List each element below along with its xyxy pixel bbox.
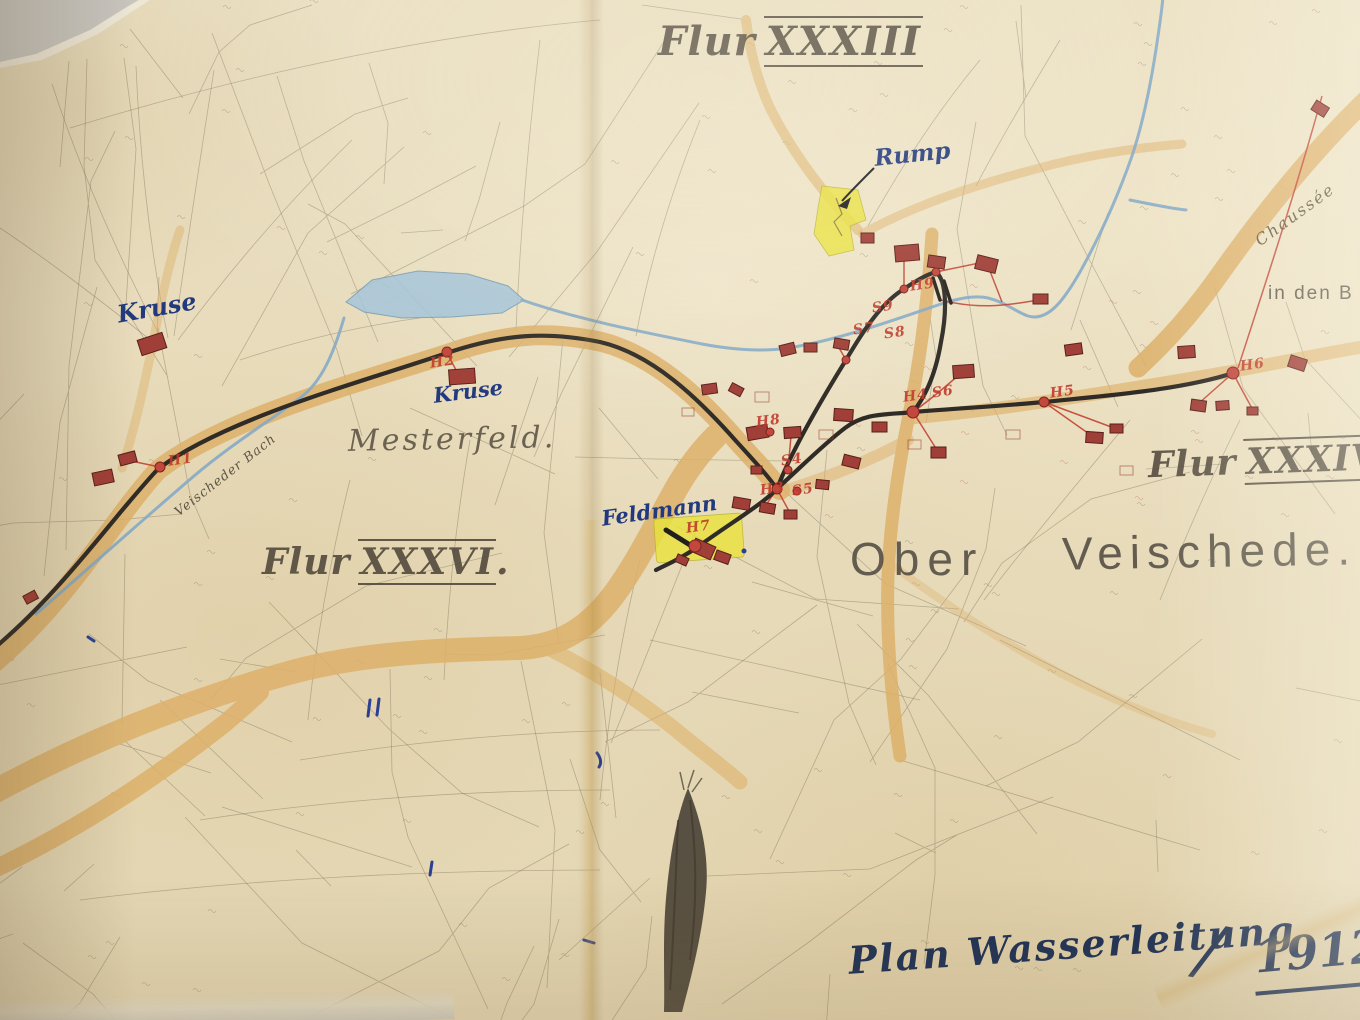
red-connection-lines — [121, 96, 1322, 553]
rump-highlight — [814, 186, 866, 256]
flur-36-numeral: XXXVI — [358, 539, 496, 585]
pond — [346, 271, 524, 318]
flur-label-33: FlurXXXIII — [658, 18, 923, 65]
pipeline-marker-h5: H5 — [1049, 382, 1076, 401]
place-label-veischede: Veischede. — [1062, 521, 1358, 580]
fold-crease-stain — [582, 520, 600, 1020]
flur-34-word: Flur — [1147, 441, 1237, 486]
ink-smudge — [664, 770, 707, 1012]
flur-33-numeral: XXXIII — [764, 16, 923, 67]
pipeline-marker-h8: H8 — [755, 411, 782, 430]
flur-label-34: FlurXXXIV. — [1147, 436, 1360, 487]
place-label-mesterfeld: Mesterfeld. — [348, 420, 557, 459]
pipeline-marker-s7: S7 — [852, 320, 876, 339]
map-photo: FlurXXXIII FlurXXXVI. FlurXXXIV. Mesterf… — [0, 0, 1360, 1020]
pipeline-marker-s6: S6 — [931, 383, 955, 402]
pipeline-marker-h2: H2 — [429, 352, 456, 371]
place-label-in-den: in den B — [1268, 283, 1354, 305]
pipeline-marker-s8: S8 — [883, 324, 907, 343]
pipeline-marker-s9: S9 — [871, 298, 895, 317]
place-label-ober: Ober — [850, 532, 984, 586]
pipeline-marker-h4: H4 — [902, 386, 929, 405]
pipeline-marker-h3: H3 — [759, 479, 786, 498]
flur-36-word: Flur — [262, 541, 350, 583]
pipeline-marker-h9: H9 — [909, 275, 936, 294]
pipeline-marker-h6: H6 — [1239, 355, 1266, 374]
pipeline-marker-s5: S5 — [791, 481, 815, 500]
flur-34-numeral: XXXIV — [1244, 434, 1360, 485]
pipeline-marker-h1: H1 — [167, 450, 194, 469]
flur-label-36: FlurXXXVI. — [262, 541, 510, 583]
pipeline-marker-s4: S4 — [780, 451, 804, 470]
pipeline-marker-h7: H7 — [685, 517, 712, 536]
flur-33-word: Flur — [658, 18, 756, 65]
